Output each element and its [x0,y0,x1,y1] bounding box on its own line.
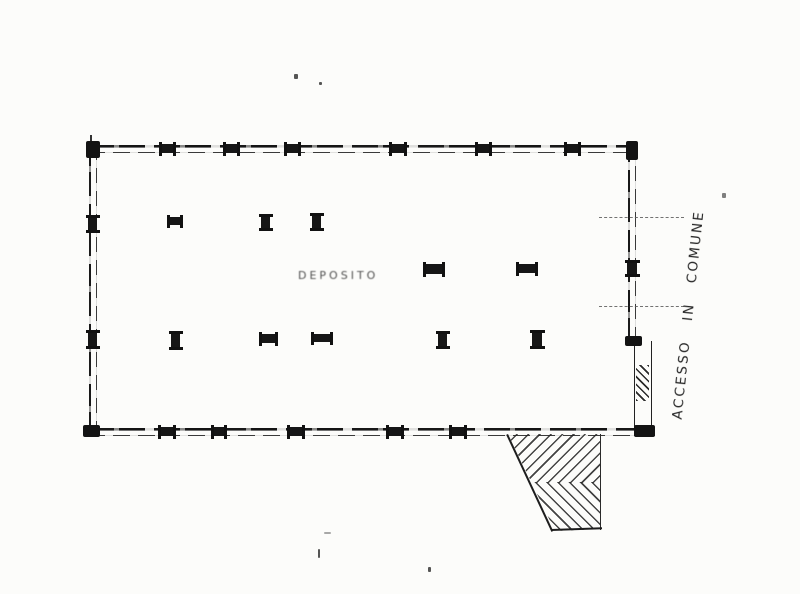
interior-column [260,334,277,343]
corner-column-bottom-left [83,425,100,437]
scan-speck [722,193,726,198]
column-marker [212,427,226,436]
dashed-line [599,306,684,307]
column-marker [288,427,304,436]
interior-column [168,217,182,225]
interior-column [312,214,321,230]
side-annotation: ACCESSO IN COMUNE [670,220,707,421]
room-label: DEPOSITO [298,269,378,282]
column-marker [387,427,403,436]
column-marker [224,144,239,153]
corner-column-top-left [86,141,100,158]
floor-plan-canvas: DEPOSITO ACCESSO IN COMUNE [0,0,800,594]
column-marker [627,261,637,276]
interior-column [424,264,444,274]
scan-speck [319,82,322,85]
interior-column [438,332,447,348]
interior-column [171,332,180,349]
column-marker [565,144,580,153]
column-marker [88,331,97,348]
scan-speck [318,549,320,558]
interior-column [517,264,537,273]
column-marker [88,216,97,232]
corner-column-bottom-right [634,425,655,437]
column-marker [625,336,642,346]
interior-column [312,334,332,342]
ramp-hatch-area [505,434,602,532]
column-marker [390,144,406,153]
wall-right-upper [628,146,636,342]
column-marker [285,144,300,153]
interior-column [532,331,542,348]
ramp-edge-bottom [551,527,602,531]
column-marker [159,427,175,436]
scan-speck [324,532,331,534]
dashed-line [599,217,684,218]
column-marker [450,427,466,436]
scan-speck [294,74,298,79]
column-marker [476,144,491,153]
ramp-edge-right [600,434,601,530]
interior-column [261,215,270,230]
wall-right-lower [634,341,652,436]
wall-fill-hatch [636,365,649,401]
wall-left [89,146,97,436]
scan-speck [428,567,431,572]
corner-column-top-right [626,141,638,160]
column-marker [160,144,175,153]
